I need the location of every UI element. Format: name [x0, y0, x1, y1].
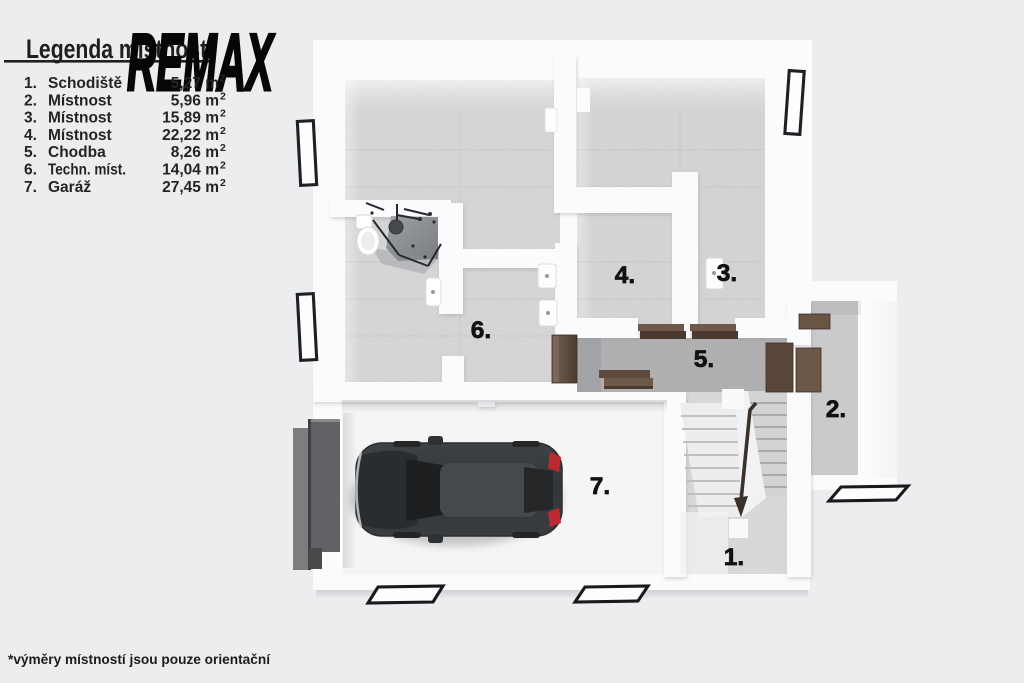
svg-text:22,22 m: 22,22 m	[162, 127, 219, 144]
svg-text:2: 2	[220, 177, 226, 189]
svg-text:4.: 4.	[24, 127, 37, 144]
svg-text:5,27 m: 5,27 m	[171, 75, 219, 92]
svg-text:Garáž: Garáž	[48, 179, 91, 196]
svg-text:6.: 6.	[24, 162, 37, 179]
svg-text:2: 2	[220, 160, 226, 172]
svg-text:2: 2	[220, 142, 226, 154]
svg-text:2: 2	[220, 108, 226, 120]
svg-text:1.: 1.	[724, 544, 744, 571]
svg-text:Schodiště: Schodiště	[48, 75, 122, 92]
svg-text:2.: 2.	[826, 396, 846, 423]
svg-text:2: 2	[220, 73, 226, 85]
svg-text:5.: 5.	[24, 144, 37, 161]
svg-text:*výměry místností jsou pouze o: *výměry místností jsou pouze orientační	[8, 651, 271, 667]
svg-text:Místnost: Místnost	[48, 110, 112, 127]
svg-text:14,04 m: 14,04 m	[162, 162, 219, 179]
svg-text:3.: 3.	[717, 260, 737, 287]
svg-text:Chodba: Chodba	[48, 144, 106, 161]
svg-text:15,89 m: 15,89 m	[162, 110, 219, 127]
svg-text:4.: 4.	[615, 262, 635, 289]
svg-text:Techn. míst.: Techn. míst.	[48, 162, 126, 179]
svg-text:3.: 3.	[24, 110, 37, 127]
svg-text:27,45 m: 27,45 m	[162, 179, 219, 196]
svg-text:5,96 m: 5,96 m	[171, 92, 219, 109]
svg-text:7.: 7.	[24, 179, 37, 196]
svg-text:7.: 7.	[590, 473, 610, 500]
svg-text:2: 2	[220, 90, 226, 102]
svg-text:5.: 5.	[694, 346, 714, 373]
svg-text:8,26 m: 8,26 m	[171, 144, 219, 161]
svg-text:6.: 6.	[471, 317, 491, 344]
svg-text:2.: 2.	[24, 92, 37, 109]
svg-text:1.: 1.	[24, 75, 37, 92]
svg-text:2: 2	[220, 125, 226, 137]
svg-text:Místnost: Místnost	[48, 92, 112, 109]
svg-text:Místnost: Místnost	[48, 127, 112, 144]
